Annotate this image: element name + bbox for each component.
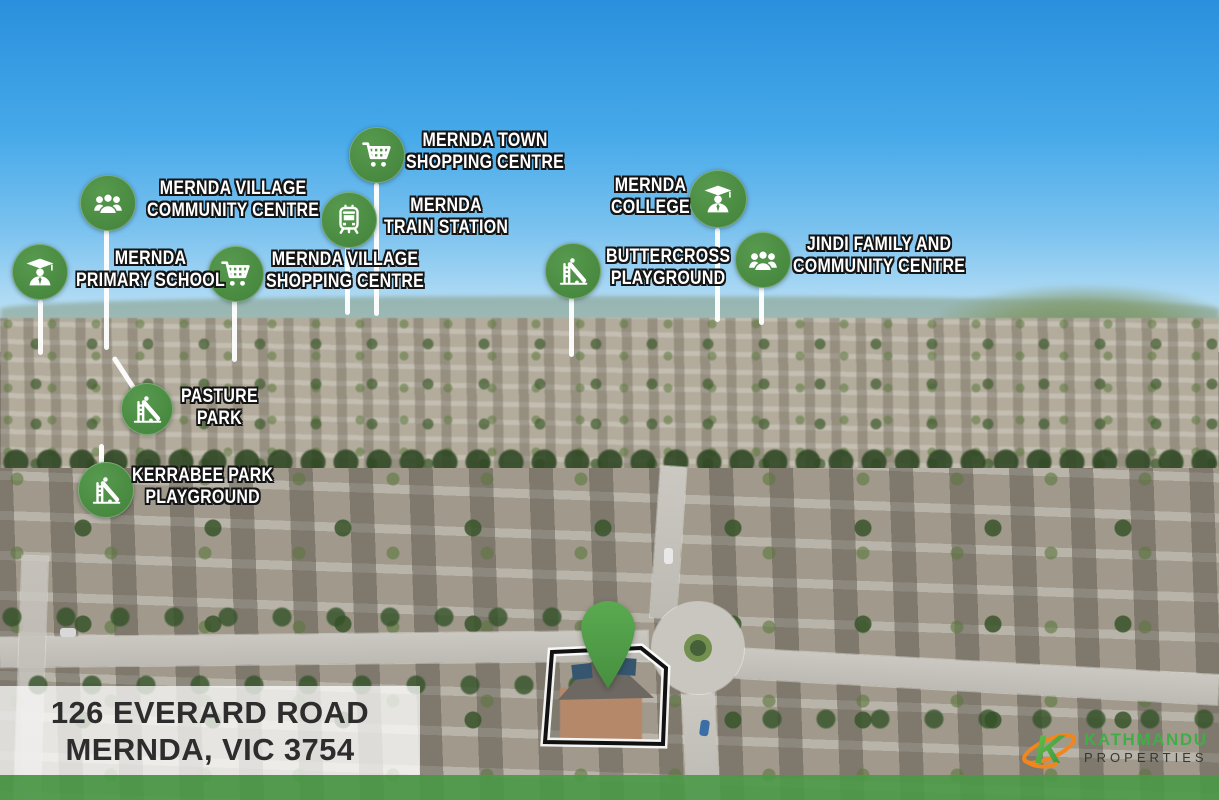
kathmandu-logo-mark: K: [1018, 722, 1080, 774]
graduate-icon: [23, 255, 57, 289]
poi-marker-mernda-village-community-centre: [80, 175, 136, 231]
poi-marker-mernda-town-shopping-centre: [349, 127, 405, 183]
property-pin-icon: [574, 596, 642, 690]
poi-label-line: MERNDA: [115, 248, 187, 270]
leader-line-mernda-village-shopping-centre: [232, 300, 237, 362]
poi-label-line: PARK: [197, 408, 242, 430]
poi-label-pasture-park: PASTURE PARK: [181, 386, 258, 430]
poi-label-line: JINDI FAMILY AND: [807, 234, 951, 256]
poi-label-line: PLAYGROUND: [611, 268, 726, 290]
footer-green-band: [0, 775, 1219, 800]
train-icon: [332, 203, 366, 237]
poi-label-line: COMMUNITY CENTRE: [147, 200, 319, 222]
address-panel: 126 EVERARD ROAD MERNDA, VIC 3754: [0, 686, 420, 775]
leader-line-mernda-primary-school: [38, 300, 43, 355]
poi-label-line: BUTTERCROSS: [606, 246, 730, 268]
poi-label-line: MERNDA VILLAGE: [272, 249, 419, 271]
roundabout-bush: [690, 640, 706, 656]
leader-line-kerrabee-park: [99, 444, 104, 464]
playground-slide-icon: [89, 473, 123, 507]
street-trees: [0, 598, 620, 636]
poi-label-line: SHOPPING CENTRE: [406, 152, 564, 174]
agency-name: KATHMANDU: [1084, 731, 1208, 749]
poi-label-mernda-primary-school: MERNDA PRIMARY SCHOOL: [76, 248, 225, 292]
poi-label-line: KERRABEE PARK: [132, 465, 273, 487]
playground-slide-icon: [556, 254, 590, 288]
poi-label-mernda-train-station: MERNDA TRAIN STATION: [384, 195, 508, 239]
poi-marker-mernda-train-station: [321, 192, 377, 248]
poi-label-mernda-town-shopping-centre: MERNDA TOWN SHOPPING CENTRE: [406, 130, 564, 174]
leader-line-buttercross-playground: [569, 297, 574, 357]
poi-marker-kerrabee-park-playground: [78, 462, 134, 518]
poi-label-line: MERNDA: [410, 195, 482, 217]
address-line-2: MERNDA, VIC 3754: [66, 731, 355, 768]
poi-marker-pasture-park: [121, 383, 173, 435]
leader-line-jindi-family: [759, 286, 764, 325]
car: [60, 628, 76, 637]
poi-label-buttercross-playground: BUTTERCROSS PLAYGROUND: [606, 246, 730, 290]
poi-label-line: COLLEGE: [611, 197, 690, 219]
poi-label-mernda-college: MERNDA COLLEGE: [611, 175, 690, 219]
poi-label-line: SHOPPING CENTRE: [266, 271, 424, 293]
people-group-icon: [91, 186, 125, 220]
graduate-icon: [701, 182, 735, 216]
poi-label-line: MERNDA: [615, 175, 687, 197]
poi-label-line: COMMUNITY CENTRE: [793, 256, 965, 278]
address-line-1: 126 EVERARD ROAD: [51, 694, 369, 731]
people-group-icon: [746, 243, 780, 277]
poi-marker-buttercross-playground: [545, 243, 601, 299]
poi-label-jindi-family-and-community-centre: JINDI FAMILY AND COMMUNITY CENTRE: [793, 234, 965, 278]
agency-subtitle: PROPERTIES: [1084, 750, 1208, 766]
poi-label-line: PRIMARY SCHOOL: [76, 270, 225, 292]
poi-marker-mernda-college: [689, 170, 747, 228]
poi-label-mernda-village-community-centre: MERNDA VILLAGE COMMUNITY CENTRE: [147, 178, 319, 222]
aerial-map-image: MERNDA TOWN SHOPPING CENTRE MERNDA VILLA…: [0, 0, 1219, 800]
poi-label-kerrabee-park-playground: KERRABEE PARK PLAYGROUND: [132, 465, 273, 509]
poi-label-line: PASTURE: [181, 386, 258, 408]
poi-marker-mernda-primary-school: [12, 244, 68, 300]
car: [664, 548, 673, 564]
poi-marker-jindi-family-and-community-centre: [735, 232, 791, 288]
poi-label-line: TRAIN STATION: [384, 217, 508, 239]
agency-logo: K KATHMANDU PROPERTIES: [1018, 722, 1208, 774]
poi-label-mernda-village-shopping-centre: MERNDA VILLAGE SHOPPING CENTRE: [266, 249, 424, 293]
shopping-cart-icon: [360, 138, 394, 172]
poi-label-line: MERNDA VILLAGE: [160, 178, 307, 200]
playground-slide-icon: [130, 392, 164, 426]
poi-label-line: MERNDA TOWN: [422, 130, 547, 152]
poi-label-line: PLAYGROUND: [145, 487, 260, 509]
agency-name-block: KATHMANDU PROPERTIES: [1084, 731, 1208, 766]
